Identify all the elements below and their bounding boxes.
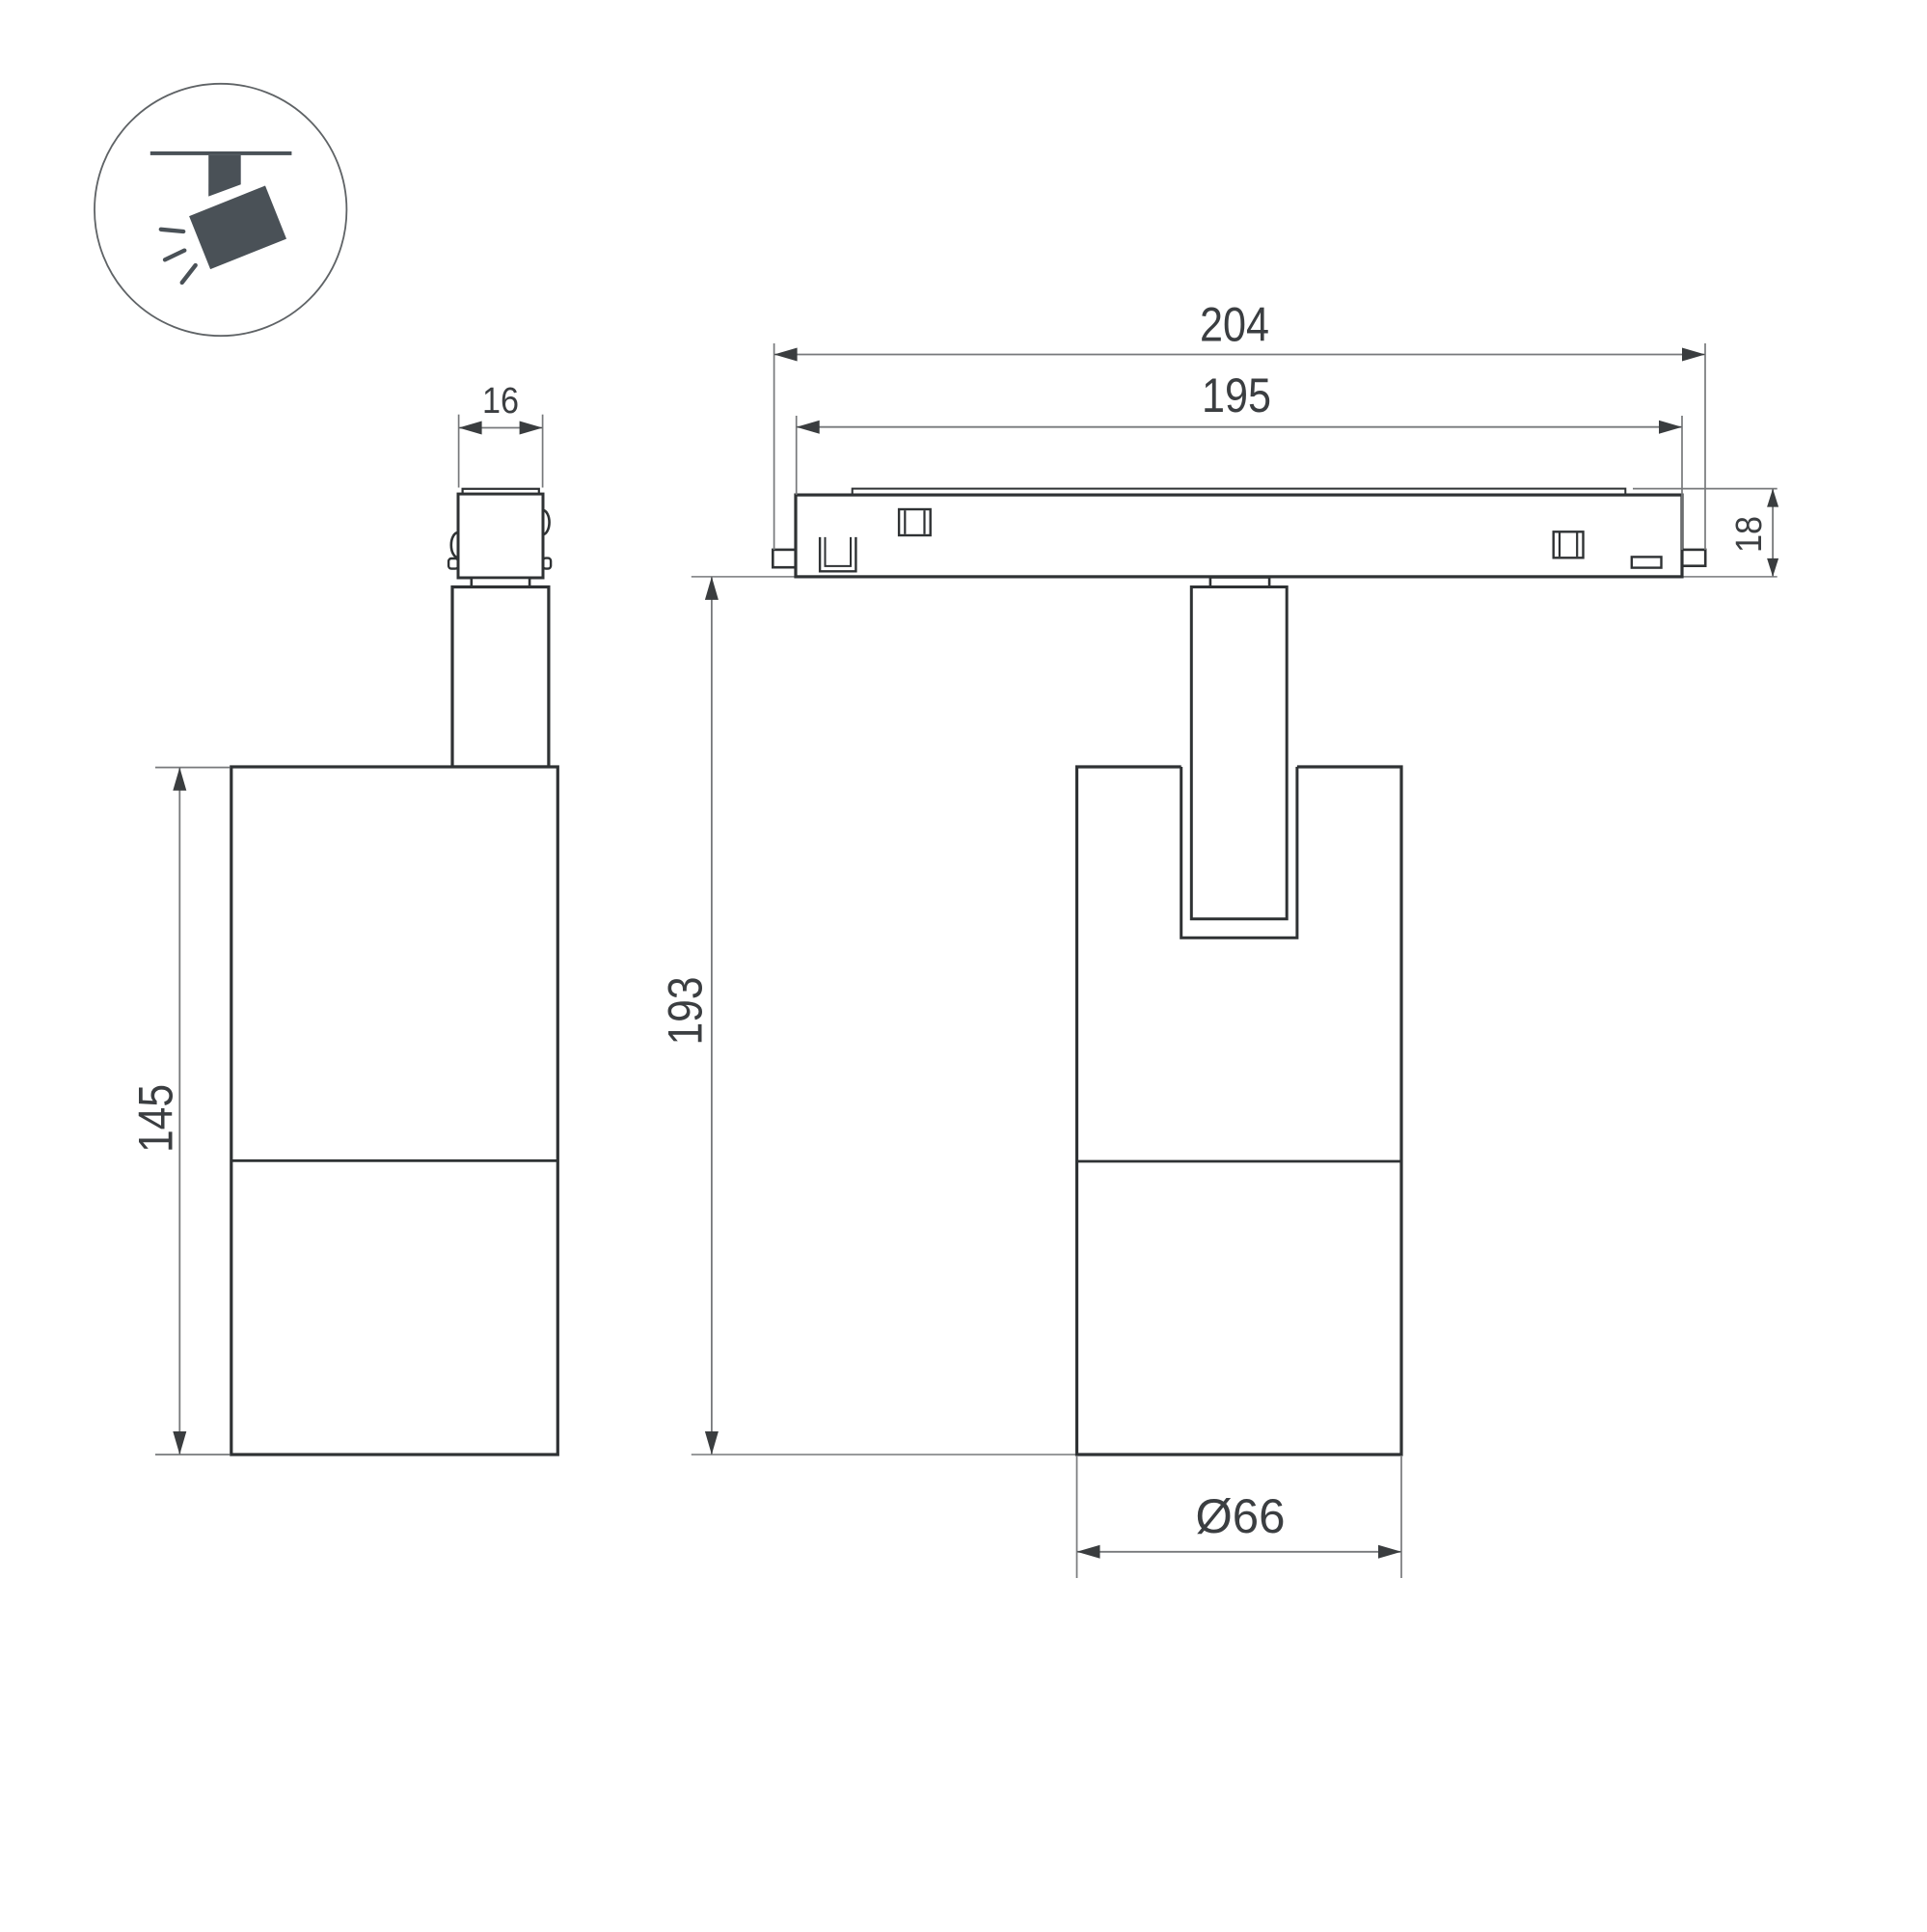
svg-text:16: 16 (482, 381, 519, 422)
svg-text:145: 145 (129, 1084, 183, 1153)
svg-text:Ø66: Ø66 (1196, 1489, 1286, 1543)
svg-text:204: 204 (1200, 298, 1269, 352)
svg-text:193: 193 (659, 977, 713, 1046)
svg-text:18: 18 (1729, 516, 1770, 553)
svg-text:195: 195 (1202, 368, 1271, 422)
